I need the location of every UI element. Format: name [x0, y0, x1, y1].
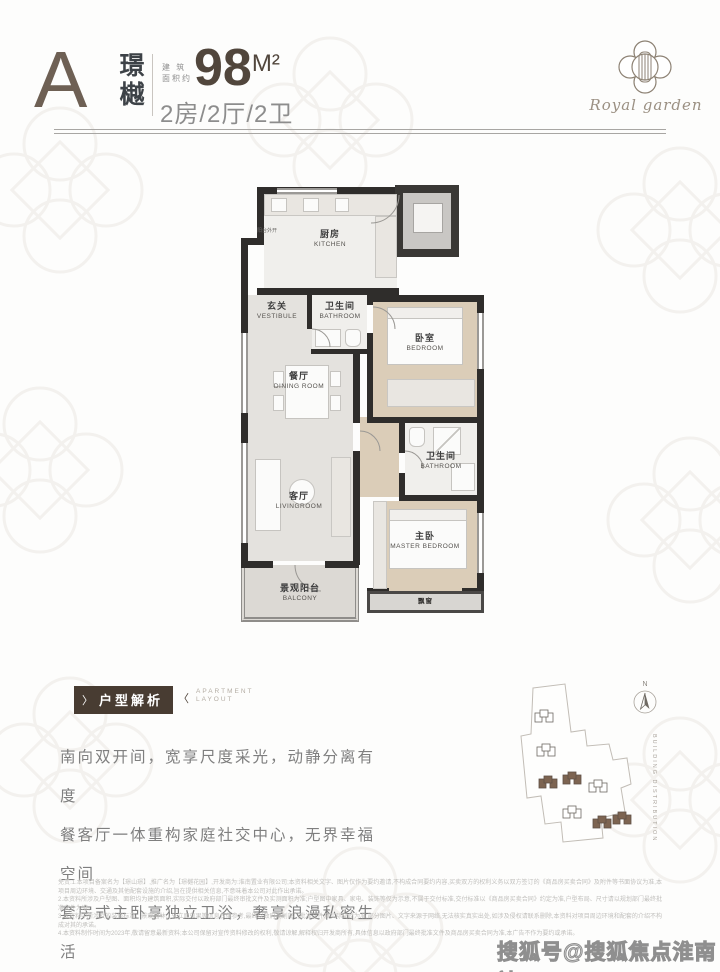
bay-window: 飘窗 — [367, 591, 484, 613]
window — [477, 513, 484, 573]
room-label-dining: 餐厅 DINING ROOM — [259, 369, 339, 390]
room-label-bedroom: 卧室 BEDROOM — [385, 331, 465, 352]
bathroom2-toilet — [409, 427, 425, 447]
window — [477, 313, 484, 369]
bathroom1-vanity — [315, 329, 341, 347]
badge-arrow-right-icon: 〈 — [178, 690, 189, 706]
window — [241, 333, 248, 413]
unit-type-letter: A — [34, 40, 87, 120]
room-label-bathroom1: 卫生间 BATHROOM — [309, 299, 371, 320]
brand-logo-script: Royal garden — [586, 96, 706, 114]
room-label-bathroom2: 卫生间 BATHROOM — [401, 449, 481, 470]
kitchen-stove — [303, 198, 319, 212]
analysis-line: 南向双开间，宽享尺度采光，动静分离有度 — [60, 738, 390, 816]
analysis-badge: 〉 户型解析 — [74, 686, 173, 714]
wall — [399, 495, 484, 501]
entry-block — [395, 185, 459, 257]
plan-annotation: 阳台外开 — [257, 227, 277, 234]
header-rule — [54, 129, 666, 134]
analysis-subtitle: APARTMENT LAYOUT — [196, 688, 254, 704]
unit-type-name: 璟樾 — [115, 52, 145, 110]
window — [241, 443, 248, 543]
bedroom-pillows — [387, 307, 463, 319]
kitchen-sink — [271, 198, 287, 212]
wall — [367, 417, 484, 423]
bedroom-wardrobe — [387, 379, 475, 407]
disclaimer-line: 免责:1.本项目备案名为【璟山璟】,推广名为【璟樾花园】,开发商为:淮南置业有限… — [58, 879, 662, 896]
siteplan-vertical-label: BUILDING DISTRIBUTION — [651, 734, 657, 842]
brand-logo-icon — [616, 38, 674, 96]
compass-icon: N — [634, 681, 656, 713]
area-number: 98 — [194, 39, 252, 97]
wall — [257, 187, 264, 245]
watermark: 搜狐号@搜狐焦点淮南站 — [497, 936, 720, 972]
master-pillows — [389, 509, 467, 521]
bathroom1-toilet — [345, 329, 361, 347]
wall — [353, 451, 360, 565]
disclaimer-text: 免责:1.本项目备案名为【璟山璟】,推广名为【璟樾花园】,开发商为:淮南置业有限… — [58, 879, 662, 939]
wall — [367, 295, 484, 302]
floorplan: 飘窗 — [237, 183, 490, 625]
bay-window-label: 飘窗 — [370, 594, 481, 610]
area-unit: M² — [252, 50, 280, 77]
wall — [353, 349, 360, 423]
dining-chair — [330, 395, 341, 411]
header-divider — [152, 54, 153, 116]
wall — [241, 561, 273, 568]
disclaimer-line: 3.本资料中所涉及的装修标准、景观园林、外立面效果等信息仅供参考,最终以政府规划… — [58, 913, 662, 930]
layout-spec: 2房/2厅/2卫 — [160, 94, 293, 129]
type-name-char-1: 璟樾 — [115, 52, 145, 110]
room-label-balcony: 景观阳台 BALCONY — [260, 581, 340, 602]
dining-chair — [273, 395, 284, 411]
kitchen-appliance — [335, 198, 349, 212]
room-label-living: 客厅 LIVINGROOM — [259, 489, 339, 510]
room-label-vestibule: 玄关 VESTIBULE — [245, 299, 309, 320]
compass-n-label: N — [642, 681, 647, 688]
analysis-badge-label: 户型解析 — [99, 690, 163, 709]
entry-landing — [413, 203, 443, 233]
area-prefix-line2: 面积约 — [162, 73, 192, 84]
wall — [325, 561, 359, 568]
kitchen-cabinet — [375, 216, 397, 278]
wall — [311, 349, 371, 354]
wall — [367, 333, 373, 417]
badge-arrow-left-icon: 〉 — [82, 692, 93, 708]
room-label-kitchen: 厨房 KITCHEN — [290, 227, 370, 248]
area-value: 98M² — [194, 42, 280, 94]
area-prefix-label: 建 筑 面积约 — [162, 62, 192, 84]
area-prefix-line1: 建 筑 — [162, 62, 192, 73]
siteplan-map: N BUILDING DISTRIBUTION — [505, 676, 675, 871]
wall — [399, 473, 405, 497]
disclaimer-line: 2.本资料所涉及户型图、面积均为建筑面积,实际交付以政府部门最终审批文件及实测面… — [58, 896, 662, 913]
suite-corridor-floor — [360, 417, 399, 497]
wall — [257, 288, 399, 295]
poster-page: A 璟樾 建 筑 面积约 98M² 2房/2厅/2卫 Royal garden — [0, 0, 720, 972]
room-label-master: 主卧 MASTER BEDROOM — [380, 529, 470, 550]
